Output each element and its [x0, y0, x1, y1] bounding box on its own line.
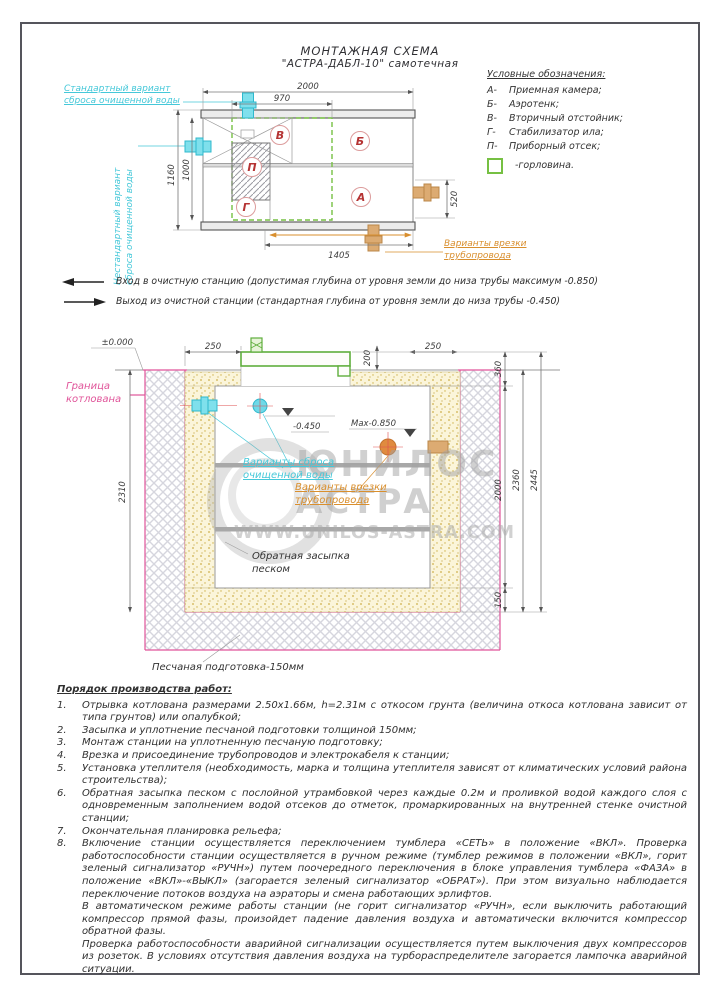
- dim-2000: 2000: [297, 82, 319, 92]
- work-item: 5. Установка утеплителя (необходимость, …: [57, 763, 687, 788]
- work-procedure-list: Порядок производства работ: 1. Отрывка к…: [57, 684, 687, 977]
- work-item: 1. Отрывка котлована размерами 2.50х1.66…: [57, 700, 687, 725]
- montage-scheme-sheet: { "sheet": { "title1": "МОНТАЖНАЯ СХЕМА"…: [0, 0, 722, 999]
- dim-250-left: 250: [205, 342, 221, 352]
- legend: Условные обозначения: А- Приемная камера…: [487, 69, 623, 174]
- dim-1405: 1405: [328, 251, 350, 261]
- work-item: 7. Окончательная планировка рельефа;: [57, 826, 687, 839]
- drawing-title: МОНТАЖНАЯ СХЕМА: [240, 44, 500, 58]
- level-zero: ±0.000: [102, 338, 133, 348]
- dim-2360: 2360: [512, 469, 522, 491]
- work-item: 6. Обратная засыпка песком с послойной у…: [57, 788, 687, 826]
- work-procedure-header: Порядок производства работ:: [57, 684, 687, 697]
- dim-150: 150: [494, 592, 504, 608]
- dim-970: 970: [274, 94, 290, 104]
- backfill-label: Обратная засыпка песком: [252, 550, 350, 576]
- dim-200: 200: [363, 350, 373, 366]
- sand-base-label: Песчаная подготовка-150мм: [152, 661, 304, 674]
- legend-header: Условные обозначения:: [487, 69, 623, 80]
- arrow-left-icon: [62, 277, 106, 287]
- drawing-subtitle: "АСТРА-ДАБЛ-10" самотечная: [240, 58, 500, 70]
- dim-1160: 1160: [167, 164, 177, 186]
- work-item-continuation: Проверка работоспособности аварийной сиг…: [57, 939, 687, 977]
- section-a-label: А: [356, 191, 366, 204]
- section-b-label: Б: [356, 135, 364, 148]
- exit-note: Выход из очистной станции (стандартная г…: [62, 296, 560, 307]
- dim-520: 520: [450, 191, 460, 207]
- dim-2310: 2310: [118, 481, 128, 503]
- legend-item-gorlovina: -горловина.: [487, 158, 623, 174]
- dim-2000-depth: 2000: [494, 479, 504, 501]
- level-0450: -0.450: [293, 422, 320, 432]
- standard-discharge-label: Стандартный вариант сброса очищенной вод…: [64, 83, 180, 107]
- section-g-label: Г: [242, 201, 250, 214]
- excavation-boundary-label: Граница котлована: [66, 380, 121, 406]
- work-item: 2. Засыпка и уплотнение песчаной подгото…: [57, 725, 687, 738]
- dim-250-right: 250: [425, 342, 441, 352]
- pipe-tapin-options-label: Варианты врезки трубопровода: [444, 238, 527, 262]
- work-item: 3. Монтаж станции на уплотненную песчану…: [57, 737, 687, 750]
- discharge-options-label: Варианты сброса очищенной воды: [243, 456, 334, 482]
- work-item: 4. Врезка и присоединение трубопроводов …: [57, 750, 687, 763]
- dim-2445: 2445: [530, 469, 540, 491]
- legend-item: А- Приемная камера;: [487, 84, 623, 98]
- neck-symbol-icon: [487, 158, 503, 174]
- dim-1000: 1000: [182, 159, 192, 181]
- tapin-options-label: Варианты врезки трубопровода: [295, 481, 387, 507]
- legend-item: Г- Стабилизатор ила;: [487, 126, 623, 140]
- arrow-right-icon: [62, 297, 106, 307]
- tank-plan: [201, 110, 415, 230]
- entry-note: Вход в очистную станцию (допустимая глуб…: [62, 276, 598, 287]
- work-item: 8. Включение станции осуществляется пере…: [57, 838, 687, 901]
- cross-section-diagram: -0.450 Max-0.850 ±0.000 2310 250 200 250…: [55, 330, 575, 690]
- legend-item: Б- Аэротенк;: [487, 98, 623, 112]
- level-max0850: Max-0.850: [351, 419, 396, 429]
- section-p-label: П: [247, 161, 256, 174]
- legend-item: В- Вторичный отстойник;: [487, 112, 623, 126]
- section-v-label: В: [276, 129, 284, 142]
- legend-item: П- Приборный отсек;: [487, 140, 623, 154]
- work-item-continuation: В автоматическом режиме работы станции (…: [57, 901, 687, 939]
- dim-360: 360: [494, 361, 504, 377]
- nonstandard-discharge-label: Нестандартный вариант сброса очищенной в…: [112, 168, 136, 285]
